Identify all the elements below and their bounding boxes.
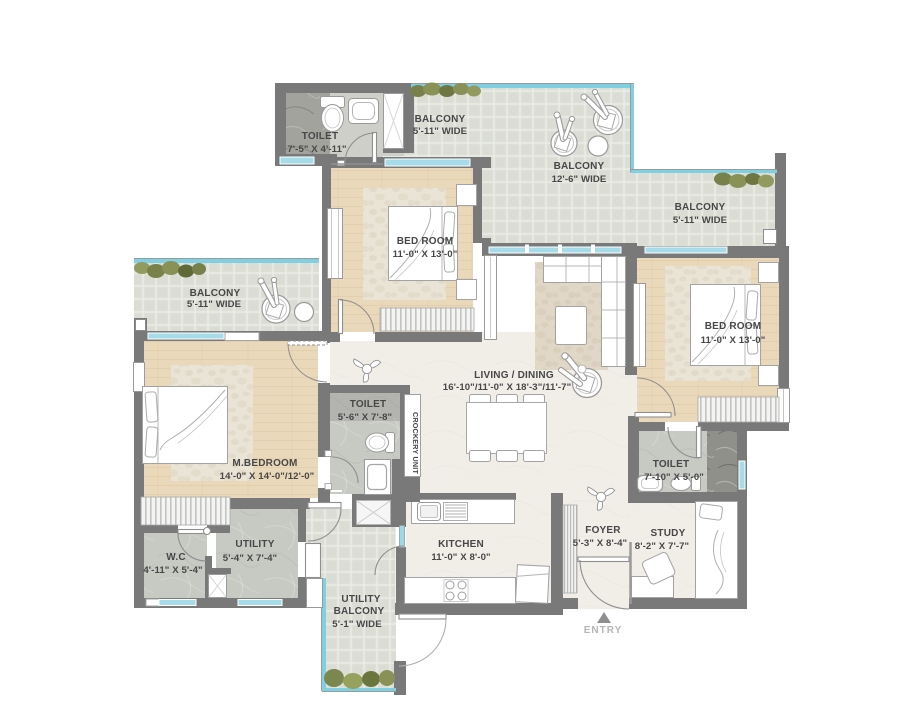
svg-text:TOILET: TOILET xyxy=(653,459,690,470)
svg-text:5'-1" WIDE: 5'-1" WIDE xyxy=(332,619,382,630)
svg-text:FOYER: FOYER xyxy=(585,525,621,536)
svg-text:7'-5" X 4'-11": 7'-5" X 4'-11" xyxy=(287,144,346,155)
svg-text:14'-0" X 14'-0"/12'-0": 14'-0" X 14'-0"/12'-0" xyxy=(220,471,315,482)
svg-text:TOILET: TOILET xyxy=(350,399,387,410)
svg-text:LIVING / DINING: LIVING / DINING xyxy=(474,370,554,381)
svg-text:7'-10" X 5'-0": 7'-10" X 5'-0" xyxy=(644,472,704,483)
svg-text:5'-4" X 7'-4": 5'-4" X 7'-4" xyxy=(223,553,277,564)
svg-text:11'-0" X 13'-0": 11'-0" X 13'-0" xyxy=(393,249,458,260)
svg-text:CROCKERY UNIT: CROCKERY UNIT xyxy=(411,412,420,475)
svg-text:BALCONY: BALCONY xyxy=(554,161,605,172)
svg-text:8'-2" X 7'-7": 8'-2" X 7'-7" xyxy=(635,541,689,552)
svg-text:5'-11" WIDE: 5'-11" WIDE xyxy=(187,299,242,310)
svg-text:M.BEDROOM: M.BEDROOM xyxy=(232,458,297,469)
svg-text:BED ROOM: BED ROOM xyxy=(705,321,762,332)
svg-text:UTILITY: UTILITY xyxy=(341,594,380,605)
svg-text:TOILET: TOILET xyxy=(302,131,339,142)
svg-text:5'-11" WIDE: 5'-11" WIDE xyxy=(673,215,728,226)
svg-text:16'-10"/11'-0" X 18'-3"/11'-7": 16'-10"/11'-0" X 18'-3"/11'-7" xyxy=(443,382,571,393)
svg-text:BALCONY: BALCONY xyxy=(415,114,466,125)
svg-text:11'-0" X 8'-0": 11'-0" X 8'-0" xyxy=(431,552,490,563)
svg-text:BALCONY: BALCONY xyxy=(334,606,385,617)
svg-text:BALCONY: BALCONY xyxy=(675,202,726,213)
svg-text:12'-6" WIDE: 12'-6" WIDE xyxy=(552,174,607,185)
svg-text:5'-3" X 8'-4": 5'-3" X 8'-4" xyxy=(573,538,627,549)
svg-text:5'-11" WIDE: 5'-11" WIDE xyxy=(413,126,468,137)
svg-text:BED ROOM: BED ROOM xyxy=(397,236,454,247)
svg-text:11'-0" X 13'-0": 11'-0" X 13'-0" xyxy=(701,335,766,346)
svg-text:W.C: W.C xyxy=(166,552,186,563)
svg-text:5'-6" X 7'-8": 5'-6" X 7'-8" xyxy=(338,412,392,423)
svg-text:KITCHEN: KITCHEN xyxy=(438,539,484,550)
svg-text:UTILITY: UTILITY xyxy=(235,539,274,550)
svg-text:ENTRY: ENTRY xyxy=(584,625,623,636)
svg-text:STUDY: STUDY xyxy=(651,528,686,539)
svg-text:4'-11" X 5'-4": 4'-11" X 5'-4" xyxy=(143,565,202,576)
svg-text:BALCONY: BALCONY xyxy=(190,288,241,299)
